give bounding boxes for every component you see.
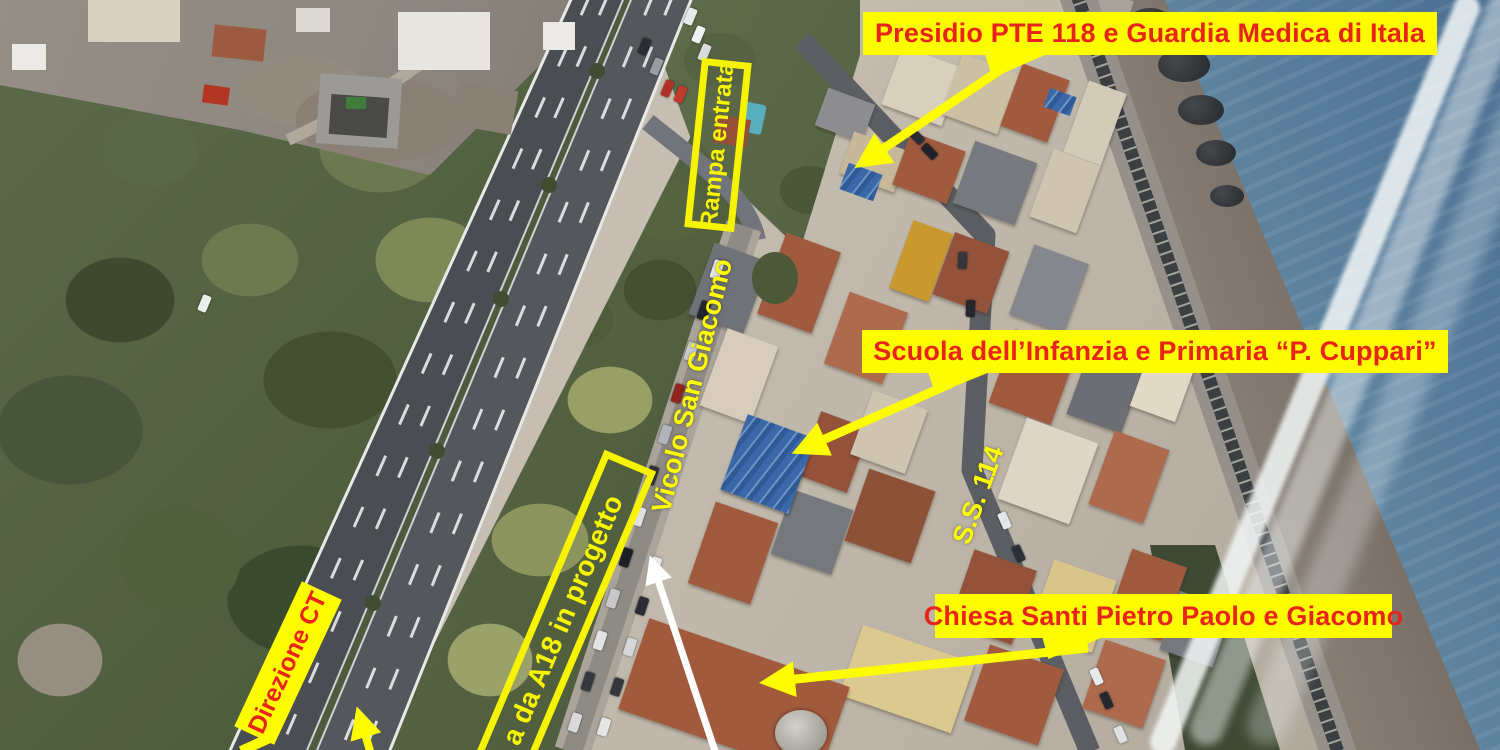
direction-up-arrow	[359, 714, 371, 750]
rampa-entrata-text: Rampa entrata	[695, 61, 740, 230]
scuola-arrow	[800, 383, 952, 450]
annotated-aerial-map: Presidio PTE 118 e Guardia Medica di Ita…	[0, 0, 1500, 750]
white-arrow	[652, 562, 716, 750]
scuola-label: Scuola dell’Infanzia e Primaria “P. Cupp…	[862, 330, 1448, 373]
chiesa-label: Chiesa Santi Pietro Paolo e Giacomo	[935, 594, 1392, 638]
presidio-arrow	[862, 62, 1012, 163]
chiesa-arrow	[768, 648, 1088, 682]
presidio-label: Presidio PTE 118 e Guardia Medica di Ita…	[863, 12, 1437, 55]
